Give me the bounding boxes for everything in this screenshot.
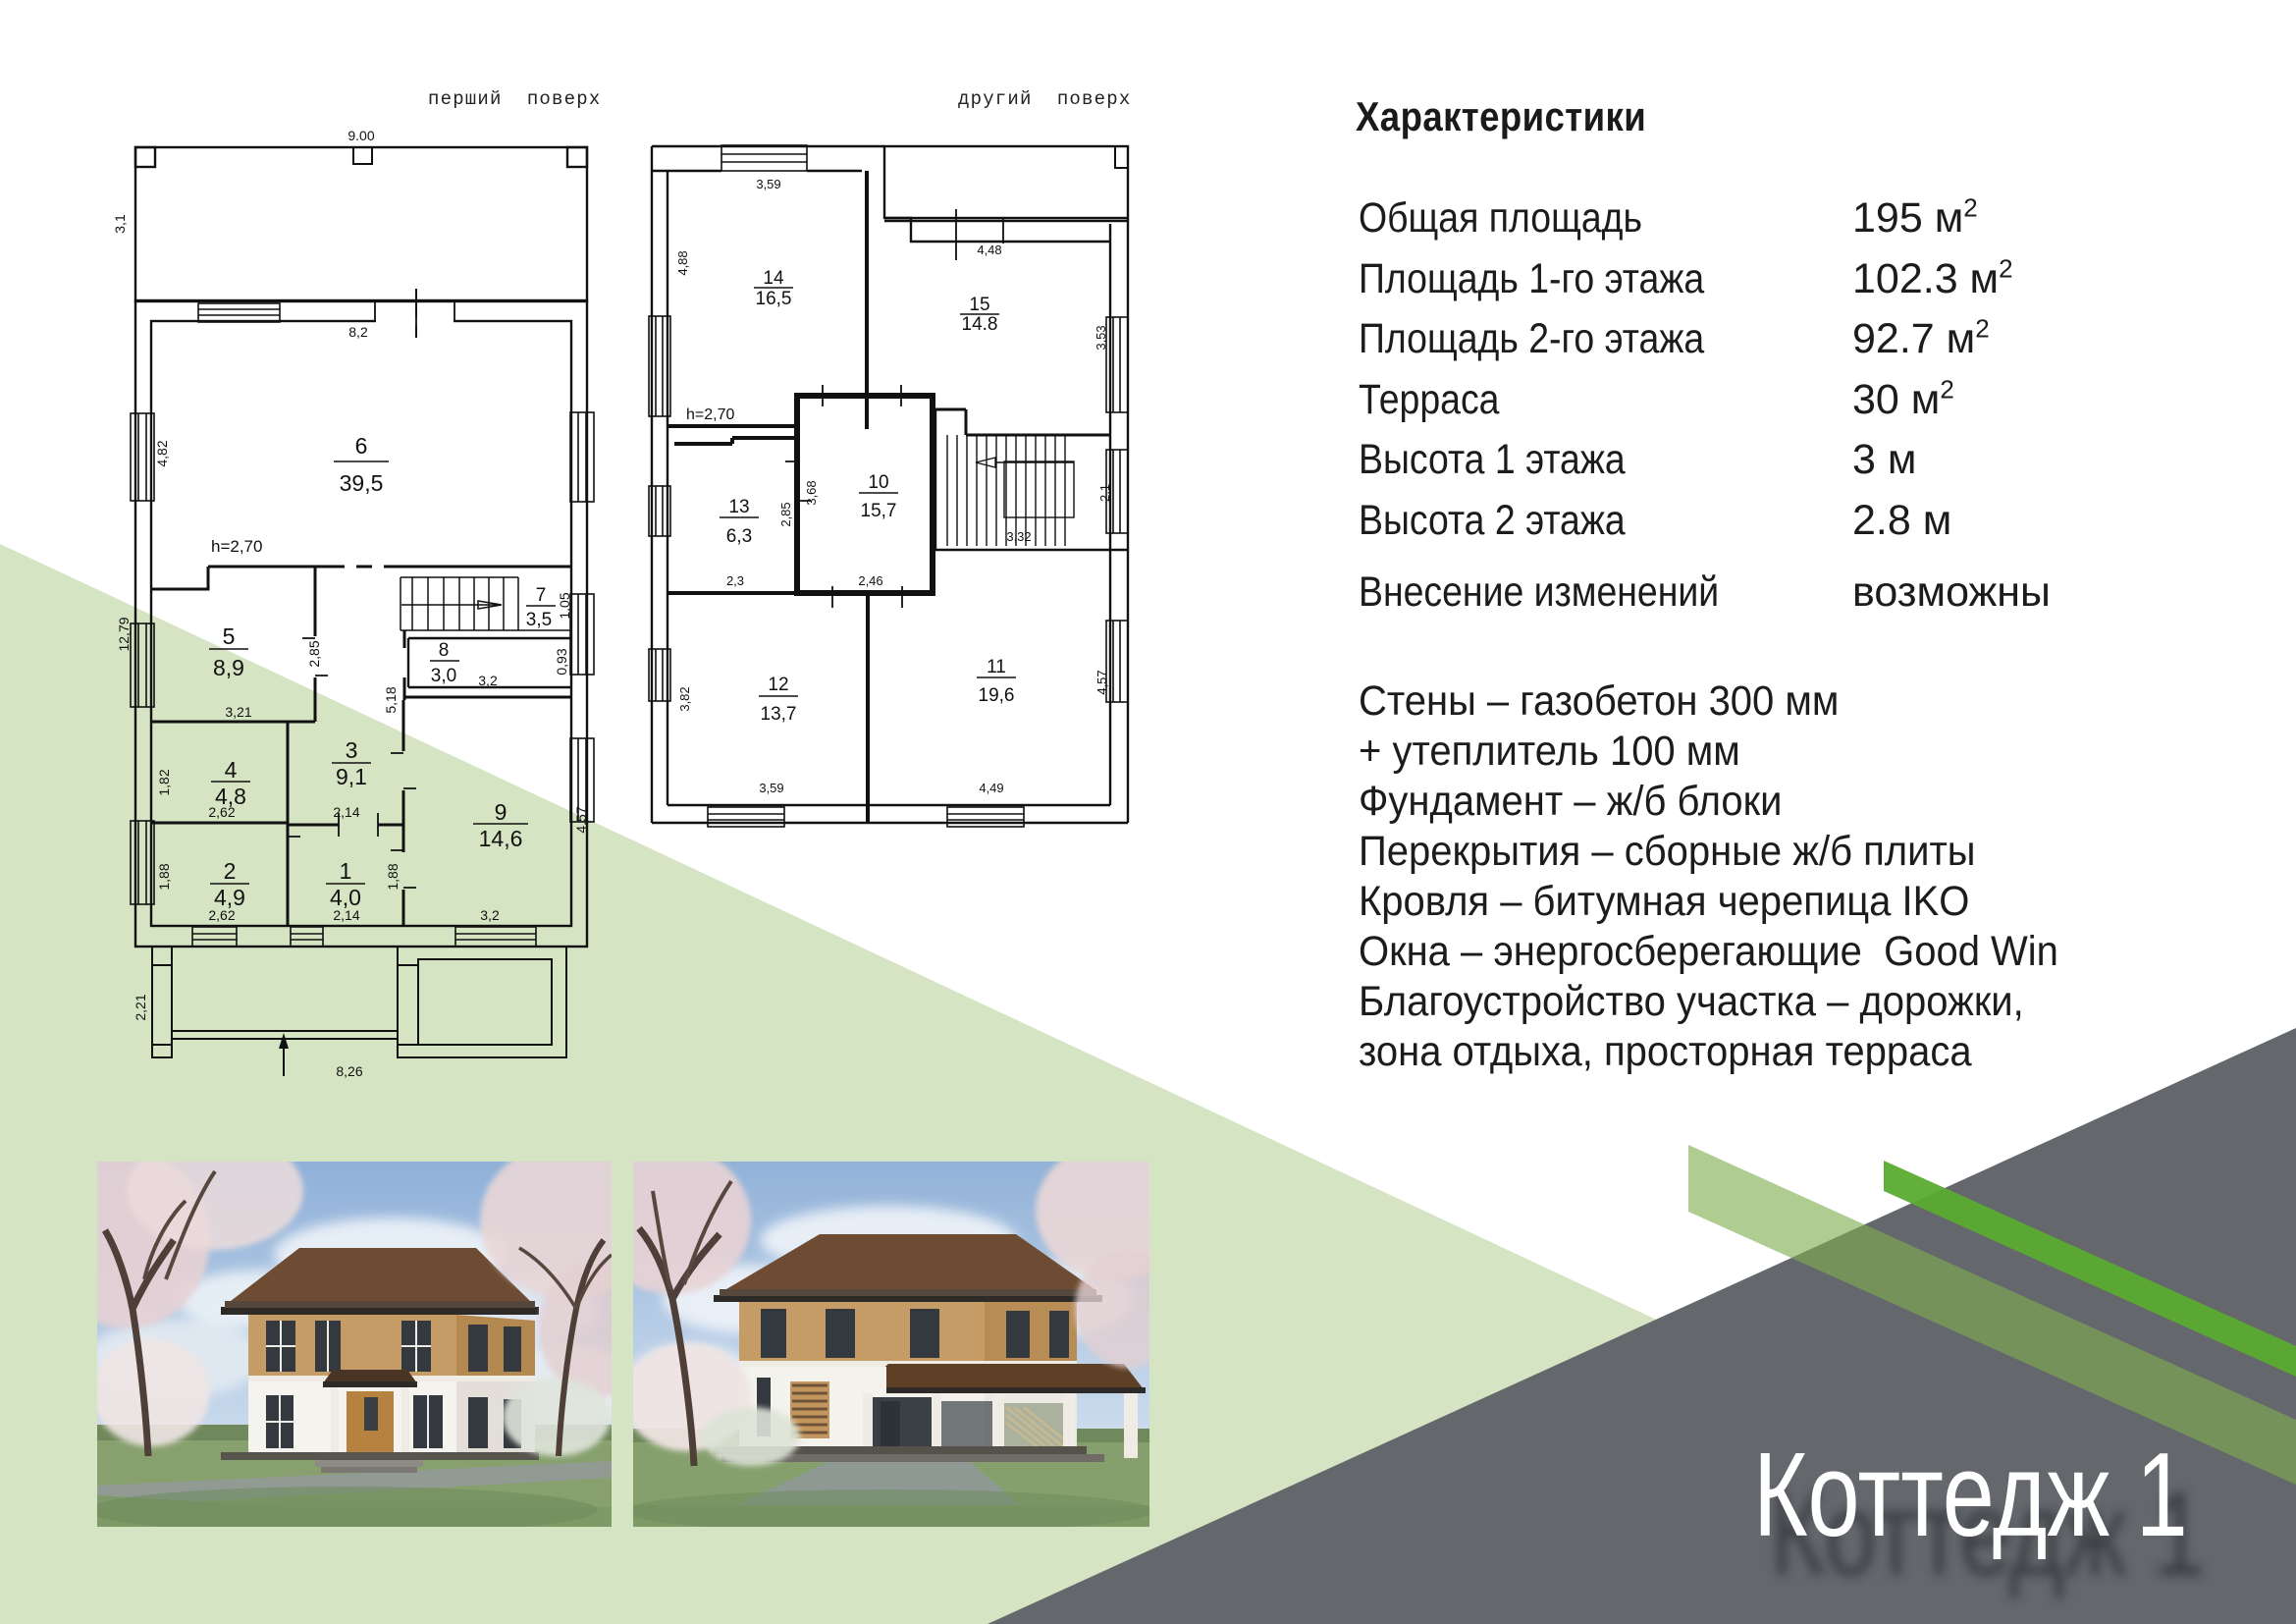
svg-text:3,59: 3,59 [759,781,783,795]
svg-text:h=2,70: h=2,70 [211,537,262,556]
svg-text:3,82: 3,82 [677,686,692,711]
svg-text:2,3: 2,3 [726,573,744,588]
svg-text:4,48: 4,48 [977,243,1001,257]
svg-text:1: 1 [340,858,352,884]
svg-text:3,21: 3,21 [225,704,251,720]
svg-text:1,88: 1,88 [385,863,400,890]
svg-text:4,57: 4,57 [573,806,589,833]
svg-text:19,6: 19,6 [979,685,1015,706]
svg-text:11: 11 [987,657,1006,677]
svg-text:3,68: 3,68 [804,480,819,505]
svg-text:3,32: 3,32 [1006,529,1031,544]
svg-text:3,2: 3,2 [478,673,498,688]
svg-text:13,7: 13,7 [761,704,797,725]
svg-text:1,05: 1,05 [557,592,572,619]
svg-text:3,59: 3,59 [756,177,780,191]
svg-text:2,85: 2,85 [778,502,793,526]
svg-text:9.00: 9.00 [347,128,374,143]
svg-text:2,14: 2,14 [333,907,359,923]
svg-text:2: 2 [224,858,237,884]
svg-text:15,7: 15,7 [861,501,897,521]
svg-text:2,62: 2,62 [208,907,235,923]
svg-text:2,21: 2,21 [133,994,148,1020]
svg-text:2,62: 2,62 [208,804,235,820]
svg-text:2,1: 2,1 [1097,484,1112,502]
svg-text:7: 7 [536,585,547,606]
svg-text:12: 12 [768,675,788,695]
svg-text:3,1: 3,1 [112,214,128,234]
svg-text:3,0: 3,0 [431,666,456,686]
svg-text:14.8: 14.8 [962,314,998,335]
svg-text:4,57: 4,57 [1095,670,1109,694]
svg-text:0,93: 0,93 [554,648,569,675]
svg-text:8,2: 8,2 [348,324,368,340]
svg-text:3,5: 3,5 [526,610,552,630]
svg-text:5,18: 5,18 [383,686,399,713]
svg-text:8,26: 8,26 [336,1063,362,1079]
svg-text:14: 14 [763,268,784,289]
svg-text:8,9: 8,9 [213,655,244,680]
svg-text:15: 15 [969,295,989,315]
svg-text:6,3: 6,3 [726,526,752,547]
svg-text:12,79: 12,79 [116,617,132,651]
svg-text:3,2: 3,2 [480,907,500,923]
svg-text:4,82: 4,82 [154,440,170,466]
svg-text:39,5: 39,5 [340,470,384,496]
svg-text:3,53: 3,53 [1094,325,1108,350]
svg-text:16,5: 16,5 [756,289,792,309]
svg-text:3: 3 [346,737,358,763]
svg-text:6: 6 [355,433,368,459]
svg-text:4: 4 [225,757,238,783]
svg-text:4,49: 4,49 [979,781,1003,795]
svg-text:2,85: 2,85 [306,640,322,667]
svg-text:1,88: 1,88 [156,863,172,890]
svg-text:5: 5 [223,623,236,649]
svg-text:2,46: 2,46 [858,573,882,588]
svg-text:10: 10 [868,472,888,493]
svg-text:14,6: 14,6 [479,826,523,851]
svg-text:1,82: 1,82 [156,769,172,795]
svg-text:9: 9 [495,799,507,825]
svg-text:h=2,70: h=2,70 [686,406,734,423]
svg-text:4,88: 4,88 [675,250,690,275]
svg-text:13: 13 [728,497,749,517]
svg-text:9,1: 9,1 [336,764,367,789]
svg-text:8: 8 [439,640,450,661]
svg-text:2,14: 2,14 [333,804,359,820]
